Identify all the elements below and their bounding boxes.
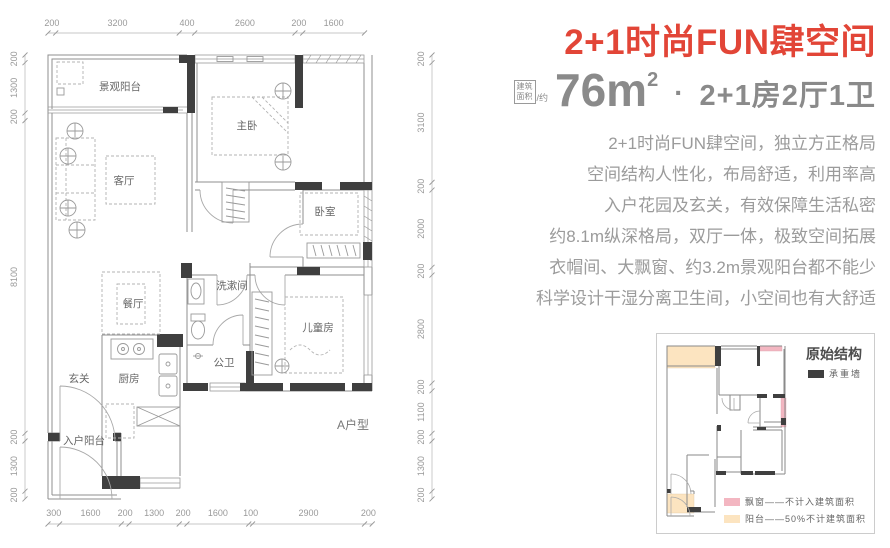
dimension-value: 200: [361, 508, 376, 518]
dimension-value: 200: [9, 51, 19, 66]
dimension-value: 1600: [208, 508, 228, 518]
room-label-entry-balcony: 入户阳台: [63, 434, 105, 447]
wall-legend: 承重墙: [808, 367, 862, 380]
dimension-chain-left: 200130020081002001300200: [9, 51, 28, 502]
dimension-value: 200: [416, 264, 426, 279]
dimension-value: 200: [44, 18, 59, 28]
original-structure-panel: 原始结构 承重墙 飘窗——不计入建筑面积 阳台——50%不计建筑面积: [656, 333, 875, 534]
dimension-value: 1300: [144, 508, 164, 518]
balcony-swatch: [724, 515, 740, 523]
dimension-value: 1300: [416, 456, 426, 476]
dimension-value: 2600: [235, 18, 255, 28]
dimension-value: 8100: [9, 267, 19, 287]
bay-window-swatch: [724, 498, 740, 506]
dimension-value: 200: [416, 179, 426, 194]
dimension-value: 200: [416, 51, 426, 66]
room-label-bedroom: 卧室: [315, 205, 336, 218]
dimension-chain-right: 20031002002000200280020011002001300200: [416, 51, 435, 502]
dimension-value: 200: [9, 488, 19, 503]
room-label-foyer: 玄关: [69, 372, 90, 385]
description-line: 约8.1m纵深格局，双厅一体，极致空间拓展: [536, 221, 876, 252]
dimension-chain-bottom: 3001600200130020016001002900200: [46, 508, 376, 527]
wall-legend-label: 承重墙: [829, 367, 862, 380]
dimension-value: 3100: [416, 113, 426, 133]
page: 景观阳台 主卧 客厅 卧室 洗漱间 餐厅 儿童房 公卫 厨房 玄关 入户阳台 A…: [0, 0, 890, 548]
dimension-value: 1300: [9, 456, 19, 476]
dimension-value: 200: [118, 508, 133, 518]
dimension-value: 100: [243, 508, 258, 518]
balcony-legend-label: 阳台——50%不计建筑面积: [745, 512, 866, 525]
area-badge: 建筑 面积 /约: [514, 80, 549, 104]
area-line: 建筑 面积 /约 76m2 · 2+1房2厅1卫: [514, 70, 877, 111]
balcony-legend-row: 阳台——50%不计建筑面积: [724, 512, 866, 525]
dimension-value: 200: [416, 430, 426, 445]
description-line: 空间结构人性化，布局舒适，利用率高: [536, 159, 876, 190]
room-label-washroom: 洗漱间: [216, 279, 248, 292]
description: 2+1时尚FUN肆空间，独立方正格局 空间结构人性化，布局舒适，利用率高 入户花…: [536, 128, 876, 314]
mini-balcony-area: [667, 346, 715, 368]
dimension-value: 1600: [324, 18, 344, 28]
room-label-dining-room: 餐厅: [123, 297, 144, 310]
room-label-kids-room: 儿童房: [302, 321, 334, 334]
area-badge-bottom: 面积: [517, 92, 533, 102]
dimension-value: 400: [179, 18, 194, 28]
dimension-value: 200: [416, 379, 426, 394]
headline: 2+1时尚FUN肆空间: [564, 14, 876, 65]
dimension-value: 3200: [107, 18, 127, 28]
dimension-value: 1100: [416, 402, 426, 421]
room-labels: 景观阳台 主卧 客厅 卧室 洗漱间 餐厅 儿童房 公卫 厨房 玄关 入户阳台 A…: [63, 80, 369, 447]
mini-plan-legend: 飘窗——不计入建筑面积 阳台——50%不计建筑面积: [724, 491, 866, 525]
room-label-master-bedroom: 主卧: [237, 119, 258, 132]
dimension-value: 1600: [80, 508, 100, 518]
description-line: 2+1时尚FUN肆空间，独立方正格局: [536, 128, 876, 159]
bay-window-legend-row: 飘窗——不计入建筑面积: [724, 495, 866, 508]
load-bearing-walls: [48, 55, 372, 489]
dimension-value: 2000: [416, 219, 426, 239]
unit-type-label: A户型: [337, 417, 369, 432]
dimension-value: 200: [9, 109, 19, 124]
description-line: 入户花园及玄关，有效保障生活私密: [536, 190, 876, 221]
area-badge-box: 建筑 面积: [514, 80, 536, 104]
floor-plan: 景观阳台 主卧 客厅 卧室 洗漱间 餐厅 儿童房 公卫 厨房 玄关 入户阳台 A…: [0, 0, 450, 548]
area-badge-top: 建筑: [517, 82, 533, 92]
bay-window-legend-label: 飘窗——不计入建筑面积: [745, 495, 855, 508]
mini-bay-window-top: [760, 346, 782, 351]
dimension-value: 300: [46, 508, 61, 518]
dimension-chain-top: 200320040026002001600: [44, 18, 367, 36]
dimension-value: 200: [176, 508, 191, 518]
walls: [48, 55, 372, 499]
area-badge-approx: /约: [537, 91, 549, 104]
mini-load-bearing-walls: [667, 346, 786, 512]
room-label-bathroom: 公卫: [214, 357, 235, 369]
description-line: 衣帽间、大飘窗、约3.2m景观阳台都不能少: [536, 252, 876, 283]
dimension-value: 200: [291, 18, 306, 28]
dimension-value: 200: [416, 488, 426, 503]
dimension-value: 1300: [9, 78, 19, 98]
dimension-value: 2900: [299, 508, 319, 518]
room-label-view-balcony: 景观阳台: [99, 80, 141, 93]
dimension-value: 2800: [416, 319, 426, 339]
room-label-kitchen: 厨房: [119, 372, 140, 385]
mini-plan-title: 原始结构: [806, 344, 862, 364]
area-value: 76m2: [555, 70, 658, 111]
room-label-living-room: 客厅: [114, 174, 135, 187]
dimension-value: 200: [9, 430, 19, 445]
wall-legend-swatch: [808, 370, 824, 378]
description-line: 科学设计干湿分离卫生间，小空间也有大舒适: [536, 283, 876, 314]
area-superscript: 2: [647, 69, 658, 91]
layout-spec: 2+1房2厅1卫: [700, 82, 876, 111]
separator-dot: ·: [674, 79, 683, 107]
